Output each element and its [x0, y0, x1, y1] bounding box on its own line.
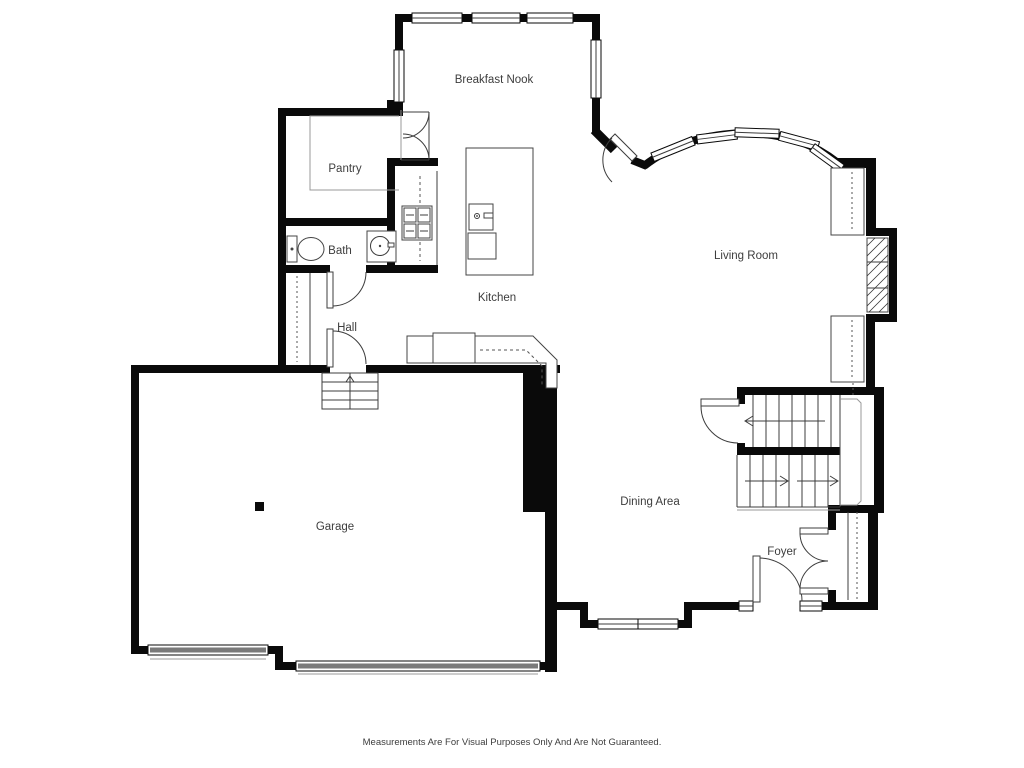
wall-segment	[866, 314, 875, 392]
wall-segment	[387, 158, 438, 166]
bath-sink	[367, 231, 396, 262]
toilet	[287, 236, 324, 262]
garage-door	[296, 661, 540, 674]
wall-segment	[131, 365, 330, 373]
window	[472, 13, 520, 23]
room-label-pantry: Pantry	[328, 163, 361, 175]
front-door	[753, 556, 802, 602]
room-label-bath: Bath	[328, 245, 352, 257]
room-label-hall: Hall	[337, 322, 357, 334]
pantry-double-door	[401, 110, 429, 160]
room-label-kitchen: Kitchen	[478, 292, 516, 304]
window	[638, 619, 678, 629]
kitchen-counter-west	[402, 171, 437, 265]
bath-door	[327, 272, 366, 308]
garage-entry-door	[327, 329, 366, 367]
room-label-garage: Garage	[316, 521, 354, 533]
foyer-closet-doors	[800, 528, 828, 594]
floorplan-page: Breakfast Nook Pantry Bath Kitchen Hall …	[0, 0, 1024, 768]
room-label-breakfast-nook: Breakfast Nook	[455, 74, 534, 86]
foyer-closet-interior	[848, 512, 857, 600]
garage-steps	[322, 373, 378, 409]
window	[651, 137, 695, 162]
wall-segment	[278, 108, 403, 116]
wall-segment	[684, 602, 740, 610]
window	[591, 40, 601, 98]
wall-segment	[874, 387, 884, 509]
wall-segment	[828, 590, 836, 606]
window	[598, 619, 638, 629]
wall-segment-column	[523, 373, 557, 512]
room-label-foyer: Foyer	[767, 546, 797, 558]
room-label-living-room: Living Room	[714, 250, 778, 262]
wall-segment	[278, 108, 286, 373]
garage-post	[255, 502, 264, 511]
wall-segment	[131, 365, 139, 652]
stair-landing	[840, 378, 861, 505]
doors	[327, 110, 828, 602]
island-dishwasher	[468, 233, 496, 259]
windows	[394, 13, 844, 629]
window	[394, 50, 404, 102]
kitchen-island	[466, 148, 533, 275]
stair-door	[701, 399, 739, 443]
stair-arrow-down	[745, 476, 838, 486]
refrigerator	[433, 333, 475, 363]
island-faucet	[484, 213, 493, 218]
wall-segment	[366, 365, 560, 373]
wall-segment	[286, 218, 395, 226]
hall-closet	[297, 273, 310, 365]
wall-segment	[889, 228, 897, 322]
window	[697, 130, 738, 144]
window	[735, 128, 779, 139]
window	[739, 601, 753, 611]
window	[527, 13, 573, 23]
stair-arrow-up	[745, 416, 825, 426]
wall-segment	[366, 265, 438, 273]
wall-segment	[278, 265, 330, 273]
wall-segment	[868, 505, 878, 610]
pantry-shelf	[310, 116, 399, 190]
garage-door	[148, 645, 268, 659]
wall-segment	[866, 158, 876, 234]
room-label-dining-area: Dining Area	[620, 496, 680, 508]
built-in-cabinet	[831, 316, 864, 382]
wall-segment	[737, 447, 840, 455]
window	[412, 13, 462, 23]
wall-segment	[737, 387, 884, 395]
fireplace	[867, 238, 888, 312]
built-in-cabinet	[831, 168, 864, 235]
range-stove	[402, 206, 432, 240]
floorplan-svg: Breakfast Nook Pantry Bath Kitchen Hall …	[0, 0, 1024, 768]
disclaimer-text: Measurements Are For Visual Purposes Onl…	[363, 737, 662, 748]
window	[800, 601, 822, 611]
wall-segment	[545, 512, 557, 672]
